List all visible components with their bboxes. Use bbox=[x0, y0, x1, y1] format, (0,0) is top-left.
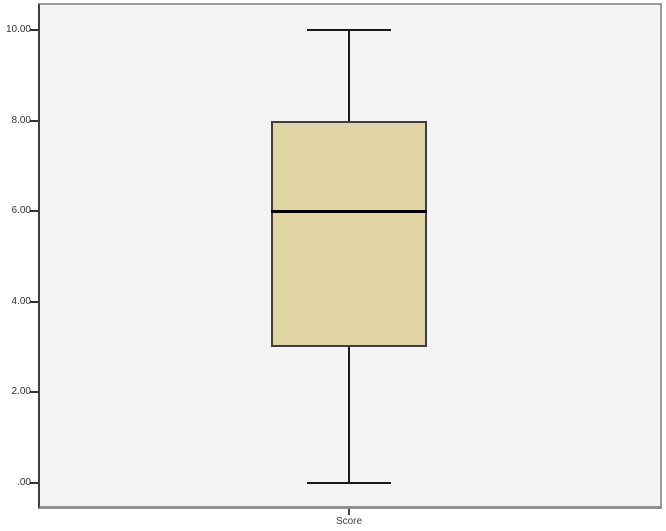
boxplot-chart: Score .002.004.006.008.0010.00 bbox=[0, 0, 666, 531]
y-tick-mark bbox=[30, 120, 38, 122]
lower-whisker-line bbox=[348, 347, 350, 483]
max-whisker-cap bbox=[307, 29, 391, 31]
y-tick-label: .00 bbox=[0, 476, 31, 490]
y-tick-label: 10.00 bbox=[0, 23, 31, 37]
y-tick-mark bbox=[30, 391, 38, 393]
y-tick-mark bbox=[30, 210, 38, 212]
iqr-box bbox=[271, 121, 427, 348]
median-line bbox=[271, 210, 427, 213]
x-axis-label: Score bbox=[299, 516, 399, 527]
min-whisker-cap bbox=[307, 482, 391, 484]
y-tick-label: 4.00 bbox=[0, 295, 31, 309]
y-tick-mark bbox=[30, 301, 38, 303]
y-tick-label: 2.00 bbox=[0, 385, 31, 399]
y-tick-label: 8.00 bbox=[0, 114, 31, 128]
x-tick-mark bbox=[348, 509, 350, 515]
y-tick-label: 6.00 bbox=[0, 204, 31, 218]
y-tick-mark bbox=[30, 29, 38, 31]
y-tick-mark bbox=[30, 482, 38, 484]
upper-whisker-line bbox=[348, 30, 350, 121]
